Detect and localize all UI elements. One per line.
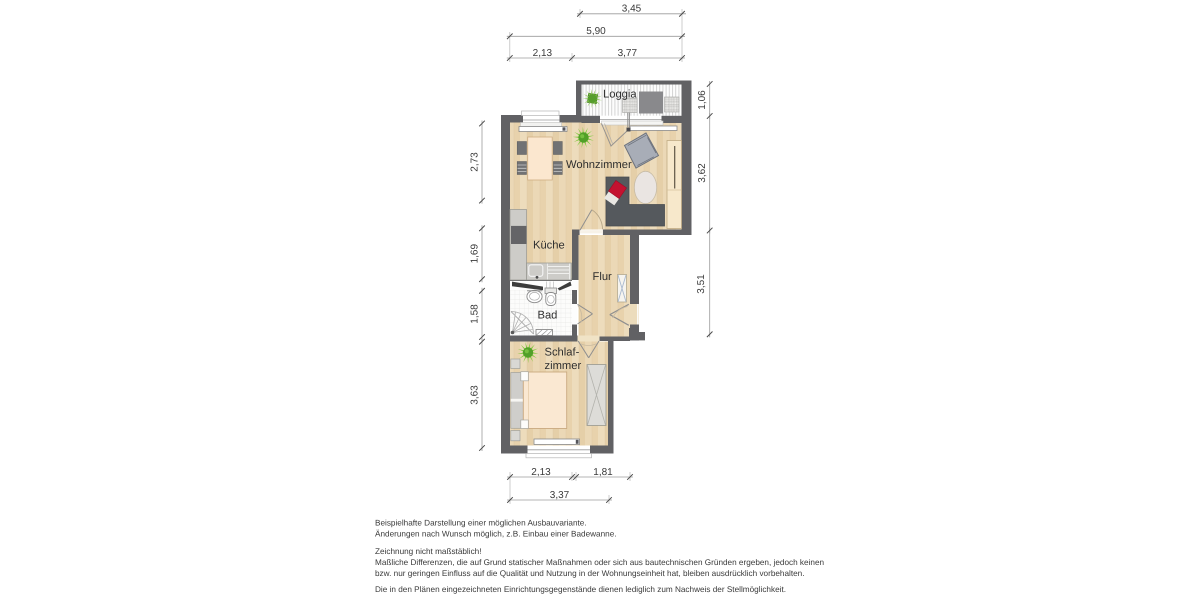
svg-text:3,77: 3,77 xyxy=(618,48,638,59)
svg-text:Maßliche Differenzen, die auf: Maßliche Differenzen, die auf Grund stat… xyxy=(375,558,825,567)
svg-text:2,13: 2,13 xyxy=(531,467,551,478)
svg-text:3,37: 3,37 xyxy=(550,490,570,501)
svg-text:3,62: 3,62 xyxy=(697,163,708,183)
svg-text:Zeichnung nicht maßstäblich!: Zeichnung nicht maßstäblich! xyxy=(375,547,482,556)
svg-text:1,69: 1,69 xyxy=(470,244,481,264)
svg-text:bzw. nur geringen Einfluss auf: bzw. nur geringen Einfluss auf die Quali… xyxy=(375,569,805,578)
svg-text:Küche: Küche xyxy=(533,240,565,252)
svg-text:zimmer: zimmer xyxy=(545,360,582,372)
svg-text:3,45: 3,45 xyxy=(622,4,642,15)
svg-text:3,51: 3,51 xyxy=(696,274,707,294)
svg-text:Bad: Bad xyxy=(538,310,558,322)
svg-text:1,06: 1,06 xyxy=(697,90,708,110)
svg-text:5,90: 5,90 xyxy=(586,26,606,37)
svg-text:2,13: 2,13 xyxy=(533,48,553,59)
svg-text:3,63: 3,63 xyxy=(470,385,481,405)
svg-text:Die in den Plänen eingezeichne: Die in den Plänen eingezeichneten Einric… xyxy=(375,585,786,594)
svg-text:Flur: Flur xyxy=(593,271,613,283)
svg-text:Loggia: Loggia xyxy=(603,89,637,101)
svg-text:2,73: 2,73 xyxy=(470,152,481,172)
svg-text:1,81: 1,81 xyxy=(593,467,613,478)
svg-text:Wohnzimmer: Wohnzimmer xyxy=(566,159,632,171)
svg-text:Beispielhafte Darstellung eine: Beispielhafte Darstellung einer mögliche… xyxy=(375,519,587,528)
svg-text:1,58: 1,58 xyxy=(470,304,481,324)
svg-text:Änderungen nach Wunsch möglich: Änderungen nach Wunsch möglich, z.B. Ein… xyxy=(375,530,617,539)
svg-text:Schlaf-: Schlaf- xyxy=(545,347,580,359)
